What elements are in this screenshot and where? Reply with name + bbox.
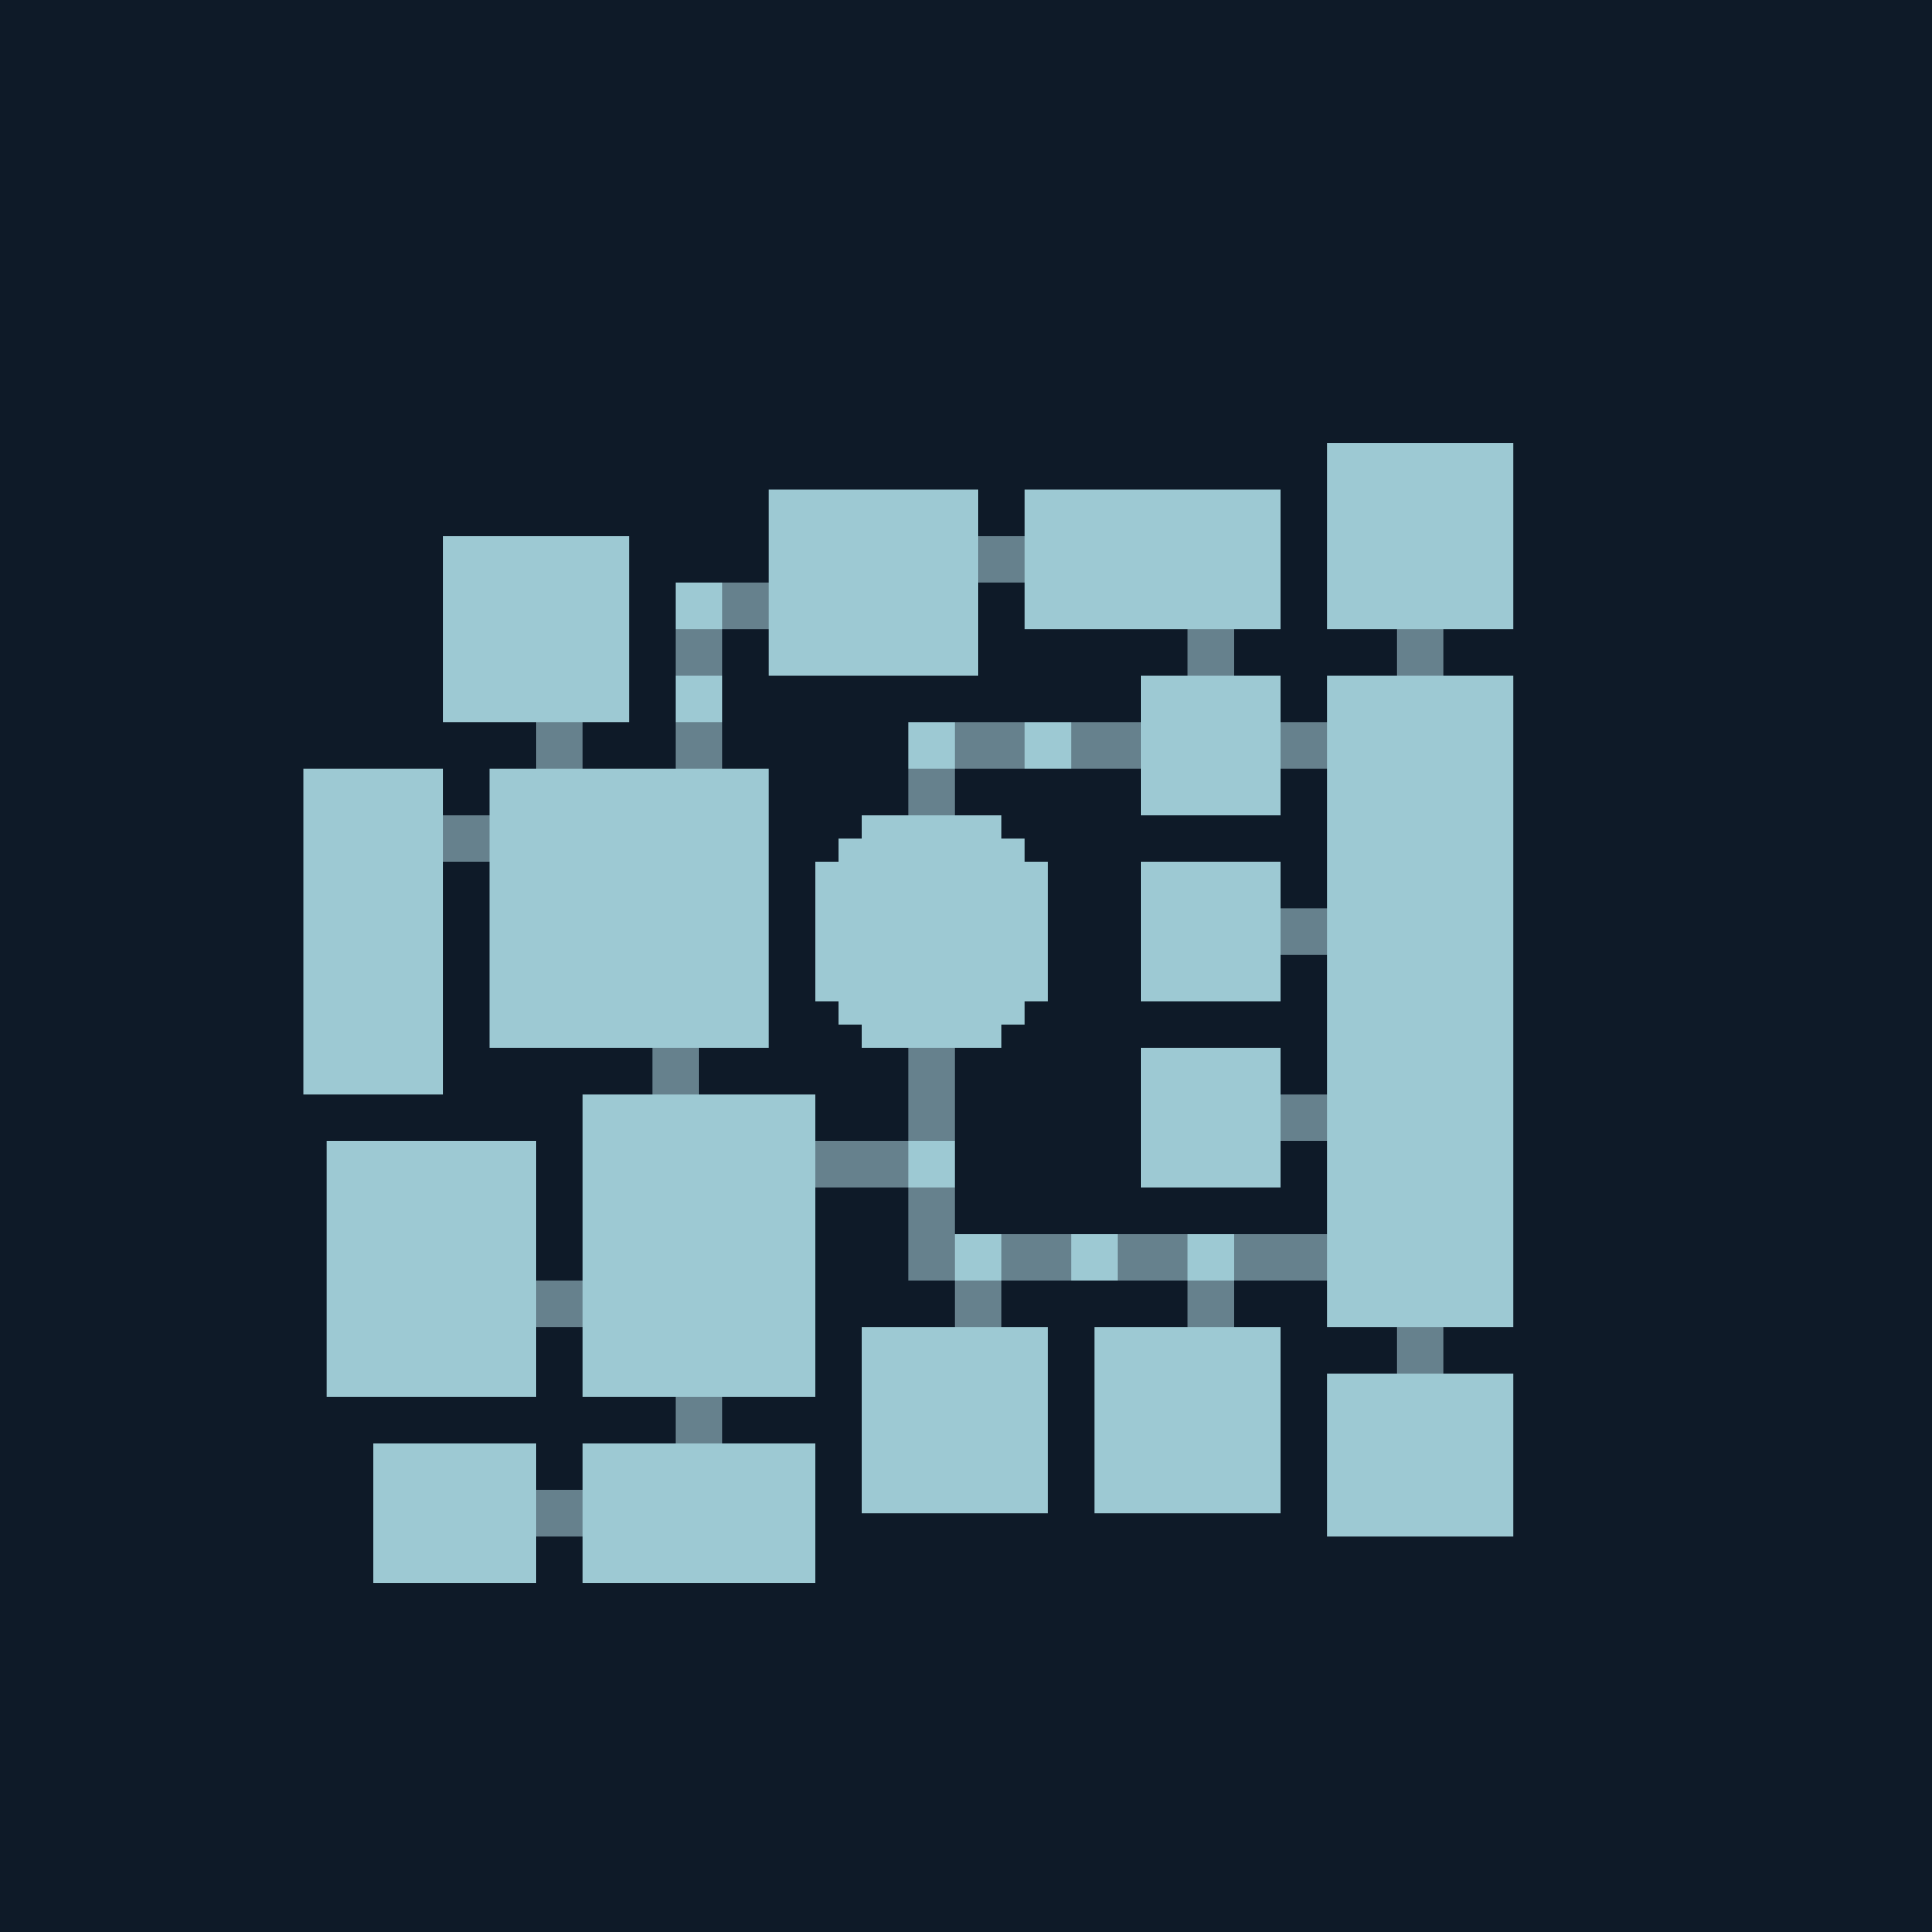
corridor-connector (1281, 1094, 1327, 1141)
room-right-tall (1327, 676, 1513, 1327)
room-mid-east-3 (1141, 1048, 1281, 1188)
circular-room-band (862, 815, 1001, 839)
corridor-connector (955, 722, 1025, 769)
corridor-connector (1281, 908, 1327, 955)
corridor-connector (722, 583, 769, 629)
corridor-connector (978, 536, 1025, 583)
room-center-large (490, 769, 769, 1048)
corridor-connector (1281, 722, 1327, 769)
corridor-connector (908, 1188, 955, 1281)
room-top-left (443, 536, 629, 722)
circular-room-band (839, 1001, 1025, 1025)
room-south-small-2 (583, 1443, 815, 1583)
room-mid-east-2 (1141, 862, 1281, 1001)
room-bottom-right (1327, 1374, 1513, 1536)
corridor-connector (536, 1490, 583, 1536)
room-top-middle (769, 490, 978, 676)
circular-room-band (815, 862, 1048, 1001)
corridor-cell (1188, 1234, 1234, 1281)
room-top-wide (1025, 490, 1281, 629)
corridor-cell (955, 1234, 1001, 1281)
circular-room-band (839, 839, 1025, 862)
room-mid-east-1 (1141, 676, 1281, 815)
corridor-connector (443, 815, 490, 862)
corridor-connector (908, 769, 955, 815)
corridor-connector (1001, 1234, 1071, 1281)
corridor-cell (676, 676, 722, 722)
corridor-cell (676, 583, 722, 629)
room-bottom-center (583, 1094, 815, 1397)
corridor-connector (1188, 629, 1234, 676)
corridor-connector (1397, 629, 1443, 676)
circular-room-band (862, 1025, 1001, 1048)
corridor-connector (676, 629, 722, 676)
corridor-connector (536, 722, 583, 769)
corridor-connector (815, 1141, 908, 1188)
room-bottom-left (327, 1141, 536, 1397)
room-top-right (1327, 443, 1513, 629)
corridor-cell (908, 722, 955, 769)
corridor-connector (1118, 1234, 1188, 1281)
corridor-cell (1025, 722, 1071, 769)
corridor-connector (1071, 722, 1141, 769)
corridor-connector (1397, 1327, 1443, 1374)
corridor-connector (908, 1048, 955, 1141)
room-left-tall (303, 769, 443, 1094)
corridor-cell (1071, 1234, 1118, 1281)
room-south-mid-1 (862, 1327, 1048, 1513)
corridor-connector (955, 1281, 1001, 1327)
corridor-connector (652, 1048, 699, 1094)
corridor-connector (536, 1281, 583, 1327)
corridor-cell (908, 1141, 955, 1188)
corridor-connector (676, 722, 722, 769)
dungeon-map (0, 0, 1932, 1932)
corridor-connector (676, 1397, 722, 1443)
corridor-connector (1188, 1281, 1234, 1327)
room-south-mid-2 (1094, 1327, 1281, 1513)
corridor-connector (1234, 1234, 1327, 1281)
room-south-small-1 (373, 1443, 536, 1583)
